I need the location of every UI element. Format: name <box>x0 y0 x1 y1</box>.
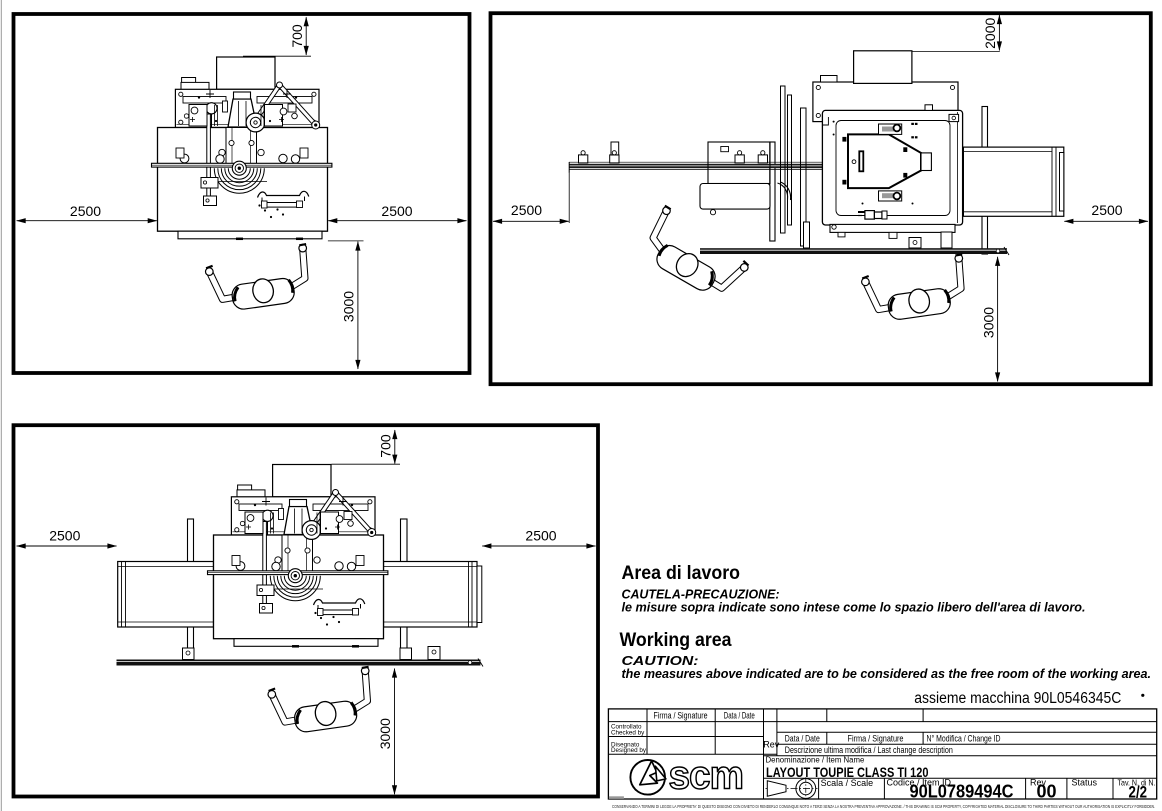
svg-text:Descrizione ultima modifica /: Descrizione ultima modifica / Last chang… <box>785 745 953 755</box>
svg-text:CONSERVANDO A TERMINI DI LEGGE: CONSERVANDO A TERMINI DI LEGGE LA PROPRI… <box>612 804 1155 809</box>
svg-text:2500: 2500 <box>1091 202 1122 218</box>
svg-text:Rev: Rev <box>763 739 780 749</box>
svg-text:90L0789494C: 90L0789494C <box>910 781 1014 801</box>
svg-text:assieme macchina 90L0546345C: assieme macchina 90L0546345C <box>914 690 1121 707</box>
svg-text:Status: Status <box>1072 777 1098 787</box>
svg-text:Scala / Scale: Scala / Scale <box>821 778 874 788</box>
svg-text:2500: 2500 <box>49 527 80 543</box>
svg-text:scm: scm <box>669 753 744 797</box>
svg-text:2/2: 2/2 <box>1129 782 1148 801</box>
svg-text:Data / Date: Data / Date <box>785 733 820 743</box>
svg-text:3000: 3000 <box>377 718 393 749</box>
svg-text:Data / Date: Data / Date <box>724 710 755 720</box>
svg-text:N° Modifica / Change ID: N° Modifica / Change ID <box>927 733 1001 743</box>
svg-text:2000: 2000 <box>982 18 998 49</box>
svg-text:le misure sopra indicate sono: le misure sopra indicate sono intese com… <box>622 599 1086 614</box>
svg-text:2500: 2500 <box>70 203 101 219</box>
svg-text:2500: 2500 <box>511 202 542 218</box>
svg-text:00: 00 <box>1036 781 1056 801</box>
svg-text:700: 700 <box>378 434 394 458</box>
svg-text:Area di lavoro: Area di lavoro <box>622 563 741 584</box>
svg-text:Firma / Signature: Firma / Signature <box>848 733 904 743</box>
svg-text:3000: 3000 <box>341 291 357 322</box>
svg-text:2500: 2500 <box>525 527 556 543</box>
svg-text:the measures above indicated a: the measures above indicated are to be c… <box>622 666 1152 681</box>
svg-text:Working area: Working area <box>620 630 732 651</box>
svg-text:Designed by: Designed by <box>611 747 647 754</box>
svg-text:Firma / Signature: Firma / Signature <box>654 710 708 720</box>
svg-text:3000: 3000 <box>980 307 996 338</box>
svg-text:2500: 2500 <box>381 203 412 219</box>
svg-text:Checked by: Checked by <box>611 730 645 737</box>
svg-text:700: 700 <box>289 24 305 48</box>
